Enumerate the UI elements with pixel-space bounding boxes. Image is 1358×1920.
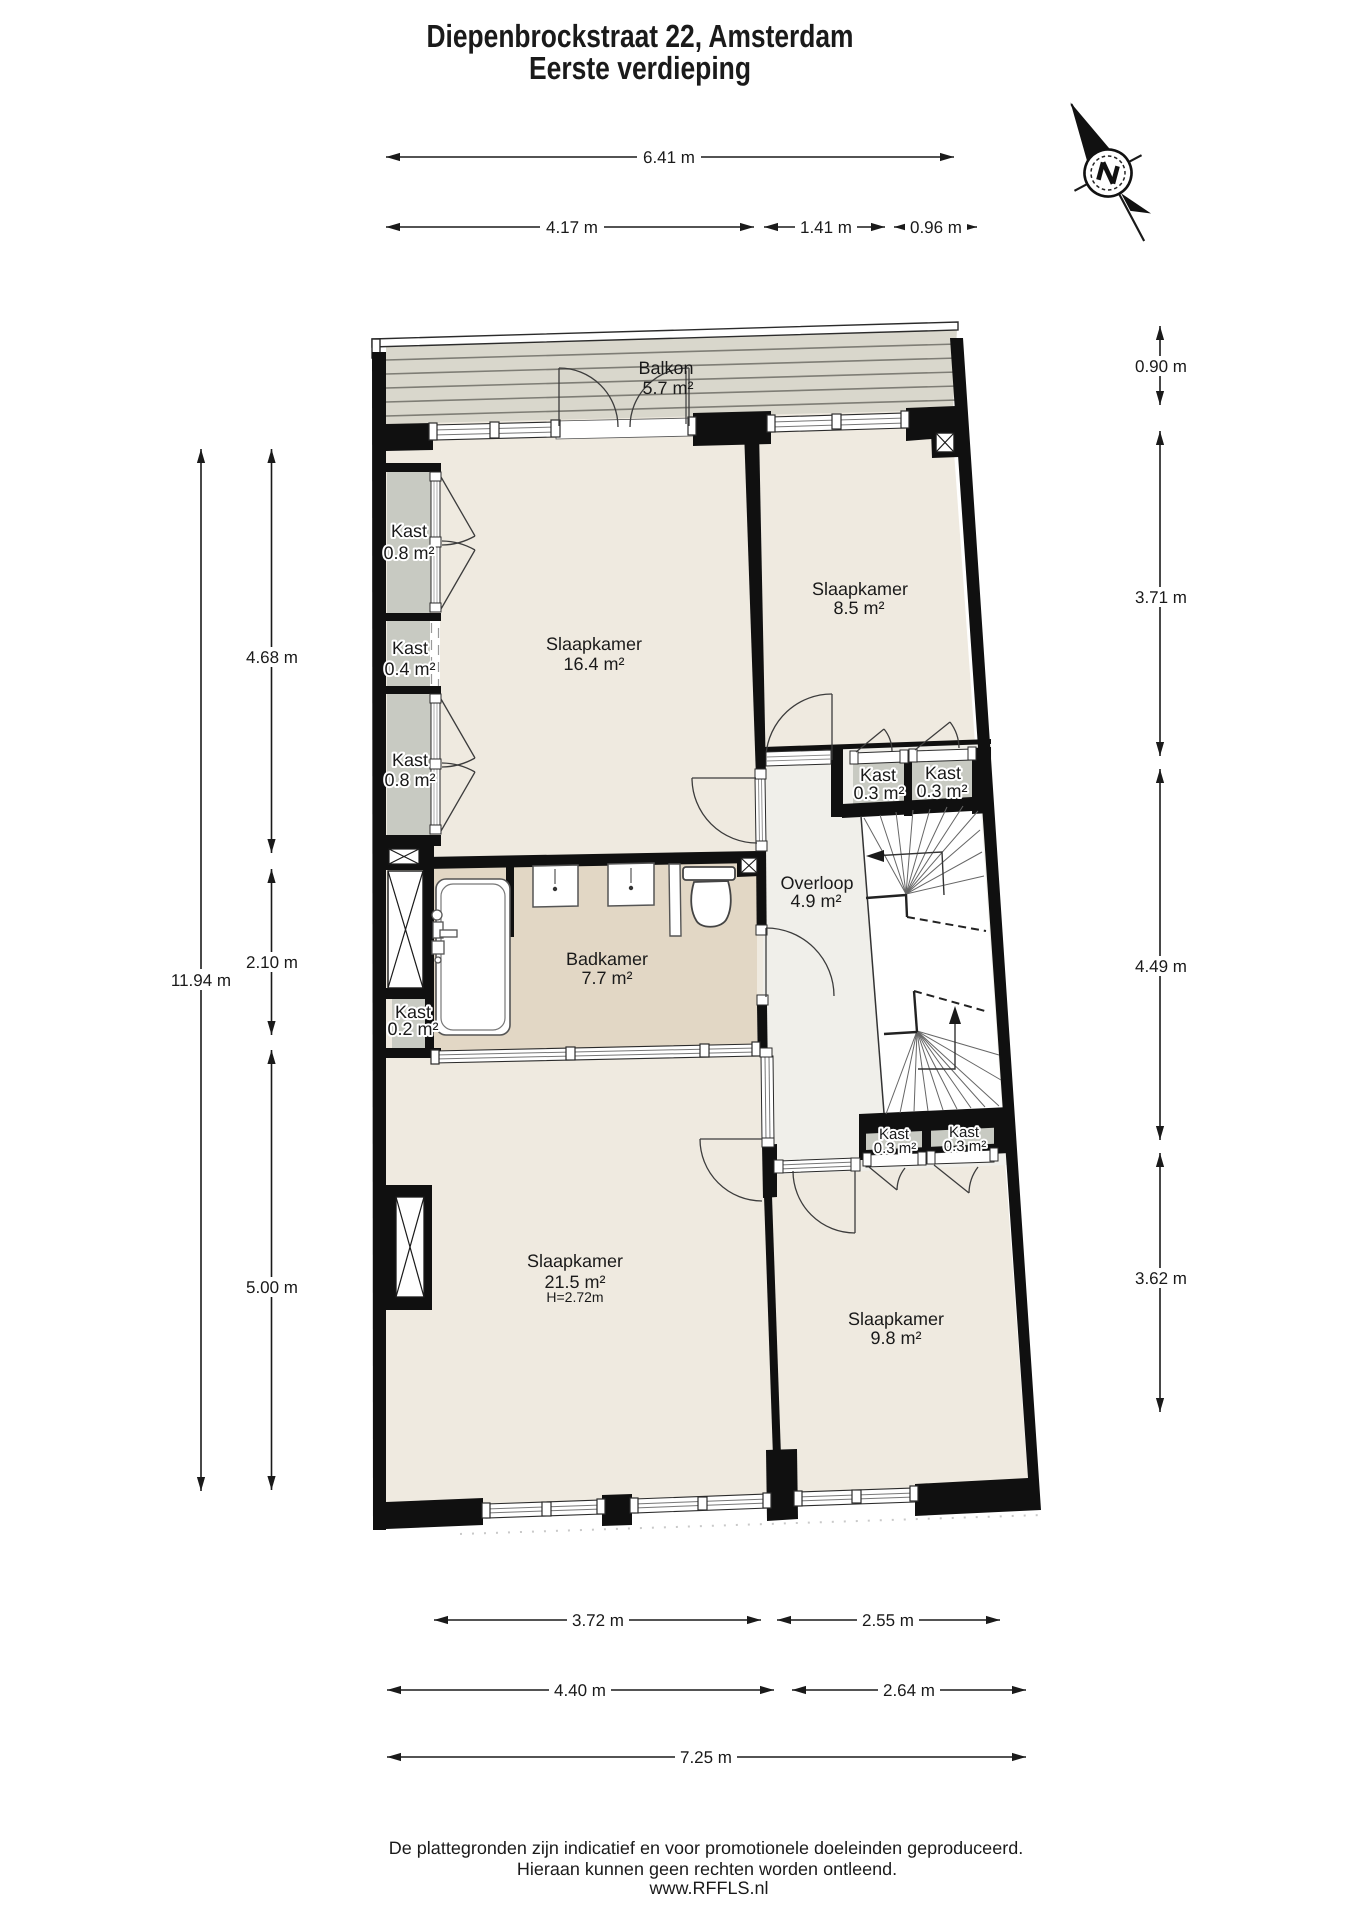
svg-text:3.71 m: 3.71 m (1135, 588, 1187, 607)
svg-text:0.3 m²: 0.3 m² (916, 781, 967, 801)
svg-text:Hieraan kunnen geen rechten wo: Hieraan kunnen geen rechten worden ontle… (517, 1859, 897, 1879)
svg-text:3.72 m: 3.72 m (572, 1611, 624, 1630)
svg-text:0.8 m²: 0.8 m² (383, 543, 434, 563)
svg-text:11.94 m: 11.94 m (171, 971, 231, 990)
svg-text:8.5 m²: 8.5 m² (833, 598, 884, 618)
svg-text:4.49 m: 4.49 m (1135, 957, 1187, 976)
svg-text:Slaapkamer: Slaapkamer (848, 1309, 944, 1329)
svg-text:7.7 m²: 7.7 m² (581, 968, 632, 988)
svg-text:0.3 m²: 0.3 m² (874, 1140, 917, 1157)
svg-text:Balkon: Balkon (638, 358, 693, 378)
svg-text:5.7 m²: 5.7 m² (642, 378, 693, 398)
svg-text:www.RFFLS.nl: www.RFFLS.nl (648, 1878, 768, 1898)
svg-text:5.00 m: 5.00 m (246, 1278, 298, 1297)
svg-text:0.90 m: 0.90 m (1135, 357, 1187, 376)
svg-text:Kast: Kast (925, 763, 961, 783)
svg-text:16.4 m²: 16.4 m² (563, 654, 624, 674)
svg-text:9.8 m²: 9.8 m² (870, 1328, 921, 1348)
svg-text:4.40 m: 4.40 m (554, 1681, 606, 1700)
svg-text:2.64 m: 2.64 m (883, 1681, 935, 1700)
svg-text:Kast: Kast (392, 750, 428, 770)
svg-text:0.8 m²: 0.8 m² (384, 770, 435, 790)
svg-text:0.4 m²: 0.4 m² (384, 659, 435, 679)
svg-text:6.41 m: 6.41 m (643, 148, 695, 167)
svg-text:Kast: Kast (392, 638, 428, 658)
svg-text:Slaapkamer: Slaapkamer (812, 579, 908, 599)
svg-text:Diepenbrockstraat 22, Amsterda: Diepenbrockstraat 22, Amsterdam (427, 18, 854, 54)
svg-text:2.55 m: 2.55 m (862, 1611, 914, 1630)
svg-text:0.3 m²: 0.3 m² (853, 783, 904, 803)
svg-text:Slaapkamer: Slaapkamer (546, 634, 642, 654)
svg-text:1.41 m: 1.41 m (800, 218, 852, 237)
svg-text:H=2.72m: H=2.72m (546, 1289, 603, 1305)
svg-text:De plattegronden zijn indicati: De plattegronden zijn indicatief en voor… (389, 1838, 1023, 1858)
svg-text:4.17 m: 4.17 m (546, 218, 598, 237)
svg-text:0.2 m²: 0.2 m² (387, 1019, 438, 1039)
svg-text:Badkamer: Badkamer (566, 949, 648, 969)
svg-text:4.9 m²: 4.9 m² (790, 891, 841, 911)
svg-text:4.68 m: 4.68 m (246, 648, 298, 667)
svg-text:2.10 m: 2.10 m (246, 953, 298, 972)
svg-text:Slaapkamer: Slaapkamer (527, 1251, 623, 1271)
svg-text:3.62 m: 3.62 m (1135, 1269, 1187, 1288)
svg-text:7.25 m: 7.25 m (680, 1748, 732, 1767)
svg-text:0.96 m: 0.96 m (910, 218, 962, 237)
svg-text:Eerste verdieping: Eerste verdieping (529, 50, 751, 86)
svg-text:Kast: Kast (860, 765, 896, 785)
svg-text:0.3 m²: 0.3 m² (944, 1138, 987, 1155)
svg-text:Kast: Kast (391, 521, 427, 541)
svg-text:Overloop: Overloop (780, 873, 853, 893)
